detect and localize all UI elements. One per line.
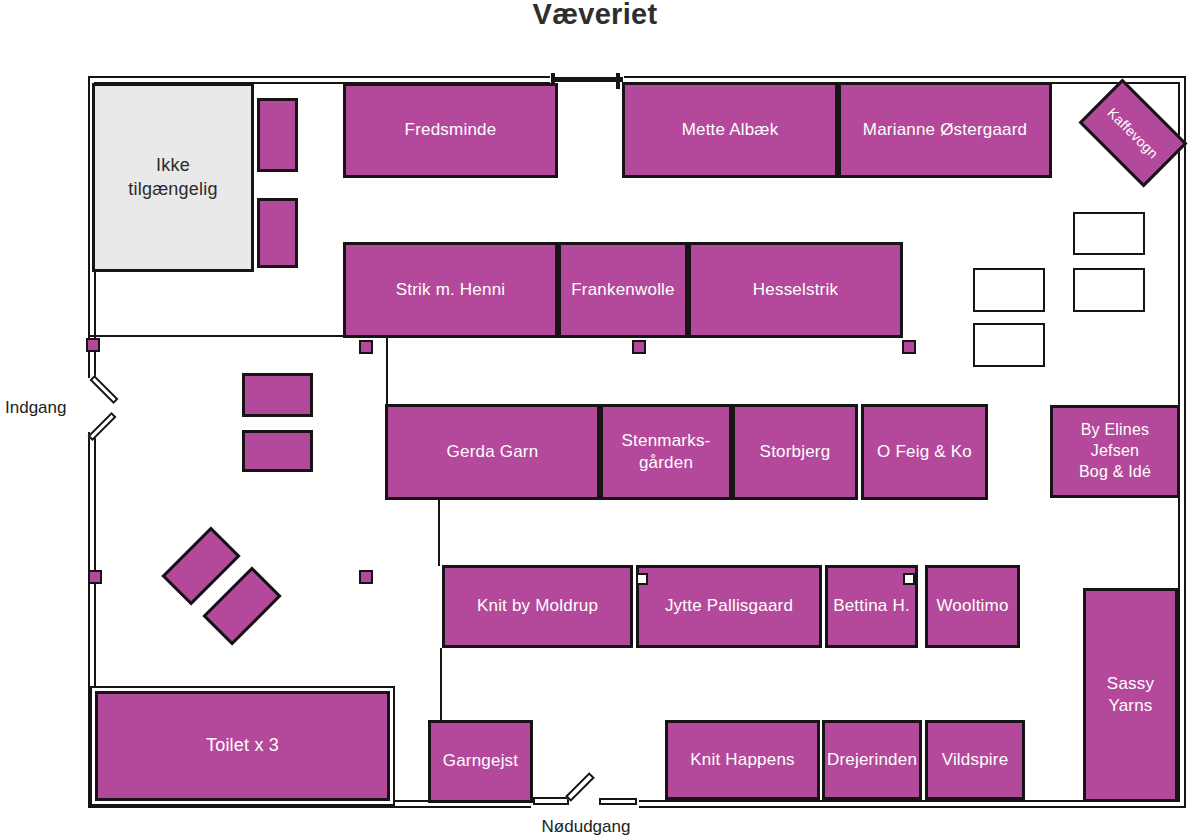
partition-line-v1 bbox=[386, 335, 388, 406]
booth-gerda-garn: Gerda Garn bbox=[385, 404, 600, 500]
booth-stenmarksgaarden: Stenmarks- gården bbox=[600, 404, 732, 500]
booth-storbjerg: Storbjerg bbox=[732, 404, 858, 500]
booth-label: Fredsminde bbox=[405, 119, 497, 141]
pillar-marker bbox=[86, 338, 100, 352]
booth-wooltimo: Wooltimo bbox=[925, 565, 1020, 648]
booth-label: O Feig & Ko bbox=[877, 441, 972, 463]
booth-hesselstrik: Hesselstrik bbox=[688, 242, 903, 338]
floorplan: Væveriet Ikke tilgængeligFredsmindeMette… bbox=[0, 0, 1190, 840]
booth-label: Vildspire bbox=[942, 749, 1009, 771]
booth-label: Stenmarks- gården bbox=[622, 430, 711, 474]
booth-stand-left-2 bbox=[242, 430, 313, 472]
top-wall-cap-right bbox=[616, 73, 620, 89]
booth-fredsminde: Fredsminde bbox=[343, 83, 558, 178]
pillar-marker bbox=[359, 340, 373, 354]
partition-line-v3 bbox=[440, 648, 442, 721]
booth-label: By Elines Jefsen Bog & Idé bbox=[1079, 420, 1151, 482]
booth-drejerinden: Drejerinden bbox=[822, 720, 922, 800]
booth-vildspire: Vildspire bbox=[925, 720, 1025, 800]
booth-label: Knit Happens bbox=[690, 749, 794, 771]
booth-sassy-yarns: Sassy Yarns bbox=[1083, 588, 1178, 802]
booth-garngejst: Garngejst bbox=[428, 720, 533, 803]
entrance-label: Indgang bbox=[5, 398, 66, 418]
booth-label: Wooltimo bbox=[936, 595, 1008, 617]
booth-label: Marianne Østergaard bbox=[863, 119, 1027, 141]
booth-label: Jytte Pallisgaard bbox=[665, 595, 793, 617]
booth-label: Mette Albæk bbox=[682, 119, 779, 141]
booth-stand-left-1 bbox=[242, 373, 313, 417]
booth-label: Strik m. Henni bbox=[396, 279, 506, 301]
emergency-exit-door-panel-right bbox=[599, 798, 637, 805]
pillar-marker bbox=[903, 573, 915, 585]
emergency-exit-door-panel-left bbox=[533, 797, 569, 805]
booth-label: Bettina H. bbox=[833, 595, 910, 617]
booth-o-feig-og-ko: O Feig & Ko bbox=[861, 404, 988, 500]
booth-label: Toilet x 3 bbox=[206, 734, 279, 757]
booth-label: Frankenwolle bbox=[571, 279, 675, 301]
top-wall-segment bbox=[551, 77, 623, 82]
booth-label: Kaffevogn bbox=[1104, 104, 1163, 163]
pillar-marker bbox=[902, 340, 916, 354]
booth-knit-by-moldrup: Knit by Moldrup bbox=[442, 565, 633, 648]
booth-stand-top-2 bbox=[257, 198, 298, 268]
booth-label: Gerda Garn bbox=[447, 441, 539, 463]
storage-box bbox=[1073, 212, 1145, 255]
booth-label: Garngejst bbox=[443, 750, 519, 772]
booth-ikke-tilgaengelig: Ikke tilgængelig bbox=[92, 83, 254, 272]
booth-label: Sassy Yarns bbox=[1107, 673, 1154, 717]
pillar-marker bbox=[636, 573, 648, 585]
booth-toilet: Toilet x 3 bbox=[95, 691, 390, 801]
booth-label: Ikke tilgængelig bbox=[128, 154, 217, 201]
booth-stand-top-1 bbox=[257, 98, 298, 172]
storage-box bbox=[973, 268, 1045, 312]
booth-label: Drejerinden bbox=[827, 749, 917, 771]
booth-frankenwolle: Frankenwolle bbox=[558, 242, 688, 338]
booth-strik-m-henni: Strik m. Henni bbox=[343, 242, 558, 338]
booth-label: Knit by Moldrup bbox=[477, 595, 598, 617]
storage-box bbox=[1073, 268, 1145, 312]
booth-by-elines-jefsen: By Elines Jefsen Bog & Idé bbox=[1050, 405, 1180, 498]
booth-label: Storbjerg bbox=[760, 441, 831, 463]
booth-marianne-oestergaard: Marianne Østergaard bbox=[838, 82, 1052, 178]
page-title: Væveriet bbox=[0, 0, 1190, 31]
storage-box bbox=[973, 323, 1045, 367]
pillar-marker bbox=[359, 570, 373, 584]
booth-label: Hesselstrik bbox=[753, 279, 838, 301]
emergency-exit-label: Nødudgang bbox=[486, 817, 686, 837]
booth-mette-albaek: Mette Albæk bbox=[622, 82, 838, 178]
partition-line-v2 bbox=[438, 500, 440, 566]
booth-jytte-pallisgaard: Jytte Pallisgaard bbox=[636, 565, 822, 648]
pillar-marker bbox=[88, 570, 102, 584]
booth-knit-happens: Knit Happens bbox=[665, 720, 820, 800]
pillar-marker bbox=[632, 340, 646, 354]
